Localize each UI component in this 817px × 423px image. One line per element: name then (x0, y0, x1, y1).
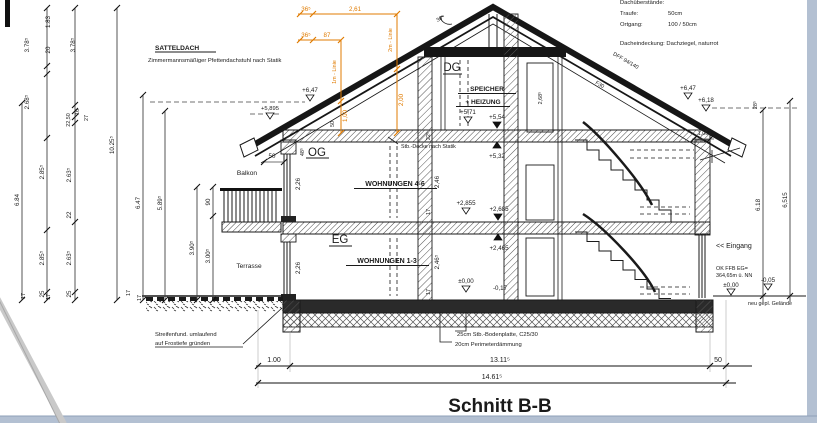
page-corner-fold (0, 296, 64, 423)
dim-label: 1.00 (267, 357, 281, 364)
note-decke: Stb.-Decke nach Statik (401, 144, 456, 150)
balcony-slab (222, 222, 281, 232)
chimney-wall (504, 14, 518, 300)
dim-label: 17 (21, 293, 27, 299)
door-sill (281, 216, 296, 222)
dim-label: 2,46 (434, 175, 441, 188)
construction-dim-label: 36⁵ (301, 6, 311, 13)
page-edge-bottom (0, 416, 817, 423)
dim-label: 1,00 (698, 131, 709, 137)
balcony-balusters (224, 191, 276, 222)
dim-label: 50 (330, 121, 336, 127)
construction-dim-label: 1,00 (342, 109, 349, 122)
dim-label: 22,50 (66, 113, 72, 127)
level-label: +6,47 (680, 85, 696, 92)
eave-dashed-lines (630, 150, 694, 158)
note-eingang: << Eingang (716, 243, 752, 250)
level-label: ±0,00 (723, 282, 739, 289)
construction-dim-label: 36⁵ (301, 32, 311, 39)
dim-label: 2.85⁵ (39, 164, 46, 179)
dim-label: 14.61⁵ (482, 374, 503, 381)
note-eindeckung: Dacheindeckung: Dachziegel, naturrot (620, 41, 719, 47)
dim-label: 2,26 (295, 177, 302, 190)
balcony-handrail (220, 188, 282, 191)
note-satteldach-title: SATTELDACH (155, 45, 199, 52)
level-label: +2,855 (456, 200, 476, 207)
level-label: -0,05 (761, 277, 776, 284)
room-label-speicher: SPEICHER (470, 86, 504, 93)
room-label-terrasse: Terrasse (236, 263, 262, 270)
dim-label: 6.18 (755, 198, 762, 211)
level-label: +2,685 (489, 206, 509, 213)
level-marker-open (464, 117, 472, 123)
dim-label: 28⁵ (753, 101, 759, 109)
level-marker-open (266, 113, 274, 119)
level-marker-filled (494, 214, 502, 220)
dim-label: 27 (84, 115, 90, 121)
stair-flight-lower (575, 232, 671, 299)
dim-label: 2.85⁵ (39, 250, 46, 265)
exterior-wall-left-top (281, 140, 296, 154)
page-background (0, 0, 817, 423)
dim-label: 25 (66, 290, 73, 297)
construction-line-label: 2m - Linie (388, 28, 394, 52)
og-floor-slab (283, 222, 710, 234)
page-edge-right (807, 0, 817, 423)
dim-label: 17 (426, 289, 432, 295)
construction-dim-label: 2,00 (398, 93, 405, 106)
room-label-wohnungen-og: WOHNUNGEN 4-6 (365, 181, 425, 188)
note-satteldach-sub: Zimmermannsmäßiger Pfettendachstuhl nach… (148, 58, 281, 64)
dim-label: 6,515 (782, 192, 789, 208)
note-perimeter: 20cm Perimeterdämmung (455, 342, 522, 348)
dim-label: 5.89⁵ (157, 195, 164, 210)
level-label: +6,18 (698, 97, 714, 104)
level-label: +5,32 (489, 153, 505, 160)
door-sill (281, 294, 296, 300)
dim-label: 2,26 (295, 261, 302, 274)
dim-label: 3.00⁵ (205, 248, 212, 263)
note-ortgang-value: 100 / 50cm (668, 22, 697, 28)
dim-label: 2,46⁵ (434, 254, 441, 269)
dim-label: 2.63⁵ (66, 250, 73, 265)
border-mark (5, 0, 10, 27)
dim-label: 22⁵ (426, 132, 432, 140)
exterior-wall-left-mid (281, 234, 296, 242)
dim-label: 48⁵ (300, 148, 306, 156)
dim-label: 6.84 (14, 193, 21, 206)
note-ortgang-label: Ortgang: (620, 22, 643, 28)
dim-label: 10.25⁵ (109, 136, 116, 154)
dim-label: 17 (137, 295, 143, 301)
gutter-right (728, 138, 746, 157)
note-ok-ffb-2: 364,65m ü. NN (716, 273, 752, 279)
level-label: +5,71 (460, 109, 476, 116)
dim-label: 17 (426, 209, 432, 215)
foundation-right (696, 300, 713, 332)
level-label: +6,47 (302, 87, 318, 94)
construction-dim-label: 87 (324, 32, 331, 39)
construction-line-label: 1m - Linie (332, 60, 338, 84)
dim-label: 25 (39, 290, 46, 297)
gutter-left (240, 138, 258, 157)
level-marker-open (764, 284, 772, 290)
dimension-lines (19, 5, 798, 388)
og-door (526, 165, 554, 220)
dim-label: 2.63⁵ (66, 167, 73, 182)
note-foundation-2: auf Frostiefe gründen (155, 341, 210, 347)
level-marker-open (702, 105, 710, 111)
exterior-wall-right (695, 140, 710, 235)
note-traufe-label: Traufe: (620, 11, 639, 17)
perimeter-insulation (283, 313, 713, 327)
ground-slab (283, 300, 713, 313)
note-dach-header: Dachüberstände: (620, 0, 665, 6)
level-label: ±0,00 (458, 278, 474, 285)
note-gelaende: neu gepl. Gelände (748, 301, 792, 307)
dim-label: 3.78⁵ (24, 37, 31, 52)
dim-label: 16 (75, 109, 81, 115)
dim-label: 17 (46, 294, 52, 300)
dim-label: 50 (269, 153, 276, 160)
stairwell-wall (558, 57, 562, 300)
dg-floor-slab (283, 130, 710, 142)
drawing-title: Schnitt B-B (448, 396, 551, 417)
room-label-dg: DG (443, 62, 460, 74)
dim-label: 17 (126, 290, 132, 296)
dim-label: 3.78⁵ (70, 37, 77, 52)
level-label: +5,895 (261, 106, 279, 112)
level-marker-open (462, 208, 470, 214)
note-rafter: DFF 94/140 (612, 51, 640, 70)
room-label-eg: EG (332, 234, 349, 246)
level-marker-open (306, 95, 314, 101)
dim-label: 90 (205, 198, 212, 205)
stair-flight-upper (575, 140, 671, 222)
level-marker-filled-up (493, 142, 501, 148)
entrance-door (699, 235, 705, 298)
level-marker-filled-up (494, 234, 502, 240)
room-label-heizung: + HEIZUNG (465, 99, 500, 106)
level-marker-open (684, 93, 692, 99)
level-marker-open (727, 289, 735, 295)
dim-label: 6.47 (135, 196, 142, 209)
interior-wall (418, 57, 432, 300)
section-drawing-canvas: 3.78⁵ 2.68⁵ 1.83 20 3.78⁵ 27 16 22,50 2.… (0, 0, 817, 423)
architectural-drawing-page: 3.78⁵ 2.68⁵ 1.83 20 3.78⁵ 27 16 22,50 2.… (0, 0, 817, 423)
dim-label: 22 (66, 211, 73, 218)
room-label-og: OG (308, 147, 326, 159)
note-foundation-1: Streifenfund. umlaufend (155, 332, 217, 338)
construction-dim-label: 2,61 (349, 6, 362, 13)
note-traufe-value: 50cm (668, 11, 682, 17)
room-label-wohnungen-eg: WOHNUNGEN 1-3 (357, 258, 417, 265)
note-ok-ffb-1: OK FFB EG= (716, 266, 748, 272)
note-bodenplatte: 25cm Stb.-Bodenplatte, C25/30 (457, 332, 538, 338)
level-marker-open (462, 286, 470, 292)
foundation-left (283, 300, 300, 332)
dim-label: 2.68⁵ (24, 94, 31, 109)
eg-door (526, 238, 554, 296)
dim-label: 2,68⁵ (538, 92, 544, 105)
terrace-soil-hatch (146, 301, 283, 312)
dim-label: 50 (714, 357, 722, 364)
bottom-dim-lines (256, 366, 752, 383)
collar-beam-ceiling (424, 47, 566, 57)
dim-label: 20 (45, 46, 52, 53)
dim-label: 1.83 (45, 15, 52, 28)
dim-label: 13.11⁵ (490, 357, 510, 364)
dim-label: 3.90⁵ (189, 240, 196, 255)
room-label-balkon: Balkon (237, 170, 257, 177)
level-label: +5,54 (489, 114, 505, 121)
level-label: +2,465 (489, 245, 509, 252)
level-label: -0,17 (493, 285, 508, 292)
level-marker-filled (493, 122, 501, 128)
